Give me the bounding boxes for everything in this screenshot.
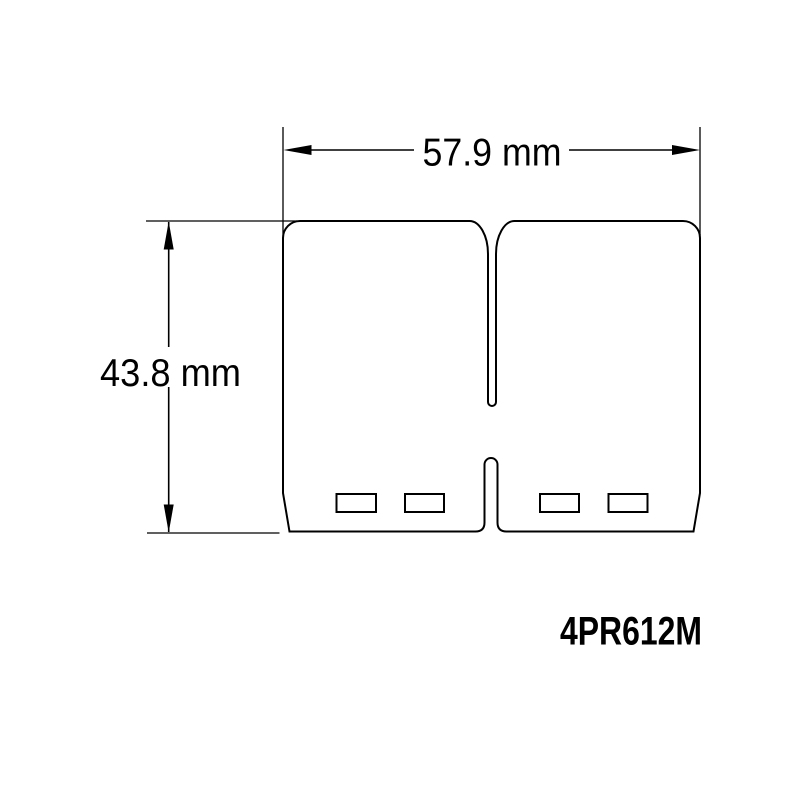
svg-text:57.9 mm: 57.9 mm bbox=[423, 132, 562, 175]
svg-text:4PR612M: 4PR612M bbox=[560, 610, 702, 654]
svg-text:43.8 mm: 43.8 mm bbox=[100, 352, 241, 395]
